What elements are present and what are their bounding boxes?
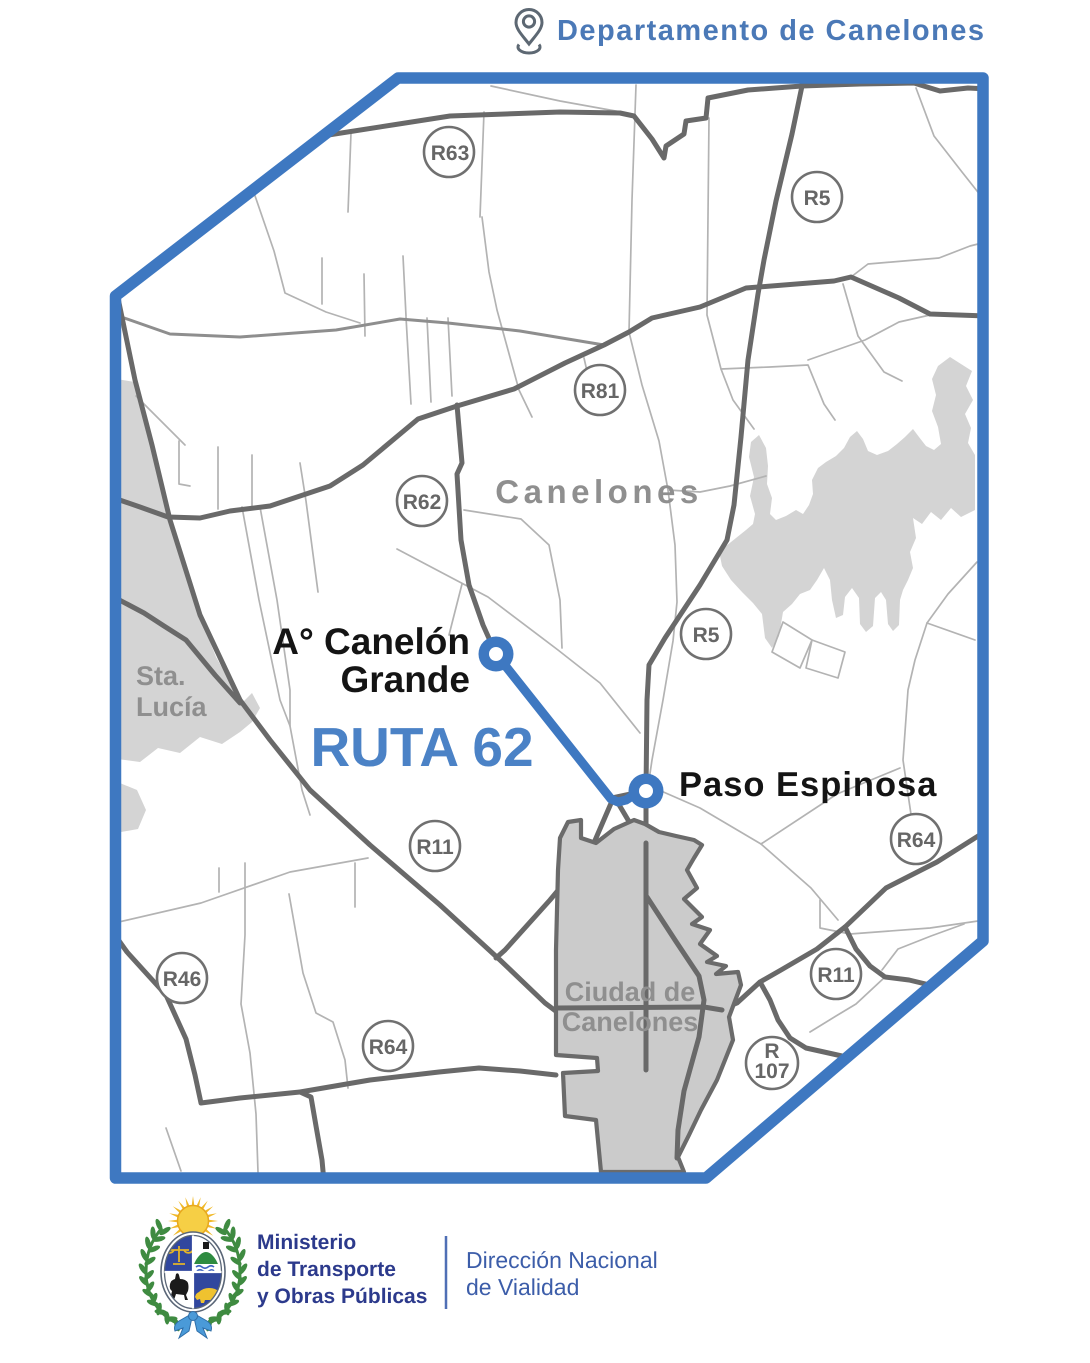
svg-text:Dirección Nacional: Dirección Nacional (466, 1247, 658, 1273)
svg-text:R46: R46 (163, 968, 202, 991)
svg-text:R11: R11 (817, 964, 855, 987)
svg-text:R64: R64 (897, 829, 936, 852)
svg-text:Sta.: Sta. (136, 661, 186, 691)
svg-text:RUTA 62: RUTA 62 (310, 716, 533, 778)
svg-text:R81: R81 (581, 380, 620, 403)
svg-text:Lucía: Lucía (136, 692, 208, 722)
svg-text:Ciudad de: Ciudad de (565, 977, 696, 1007)
svg-text:R11: R11 (416, 836, 454, 859)
svg-text:Canelones: Canelones (495, 473, 702, 510)
svg-text:de Vialidad: de Vialidad (466, 1274, 579, 1300)
svg-text:R5: R5 (693, 624, 720, 647)
svg-text:Canelones: Canelones (562, 1007, 699, 1037)
svg-text:R64: R64 (369, 1036, 408, 1059)
svg-text:A° Canelón: A° Canelón (272, 621, 470, 662)
svg-text:R62: R62 (403, 491, 442, 514)
svg-text:Ministerio: Ministerio (257, 1231, 356, 1254)
svg-text:Grande: Grande (340, 659, 470, 700)
svg-text:y Obras Públicas: y Obras Públicas (257, 1285, 427, 1308)
svg-text:R63: R63 (431, 142, 470, 165)
svg-text:R5: R5 (804, 187, 831, 210)
svg-text:107: 107 (754, 1060, 789, 1083)
svg-text:Departamento de Canelones: Departamento de Canelones (557, 15, 984, 47)
svg-text:Paso Espinosa: Paso Espinosa (679, 766, 937, 804)
svg-text:de Transporte: de Transporte (257, 1258, 396, 1281)
